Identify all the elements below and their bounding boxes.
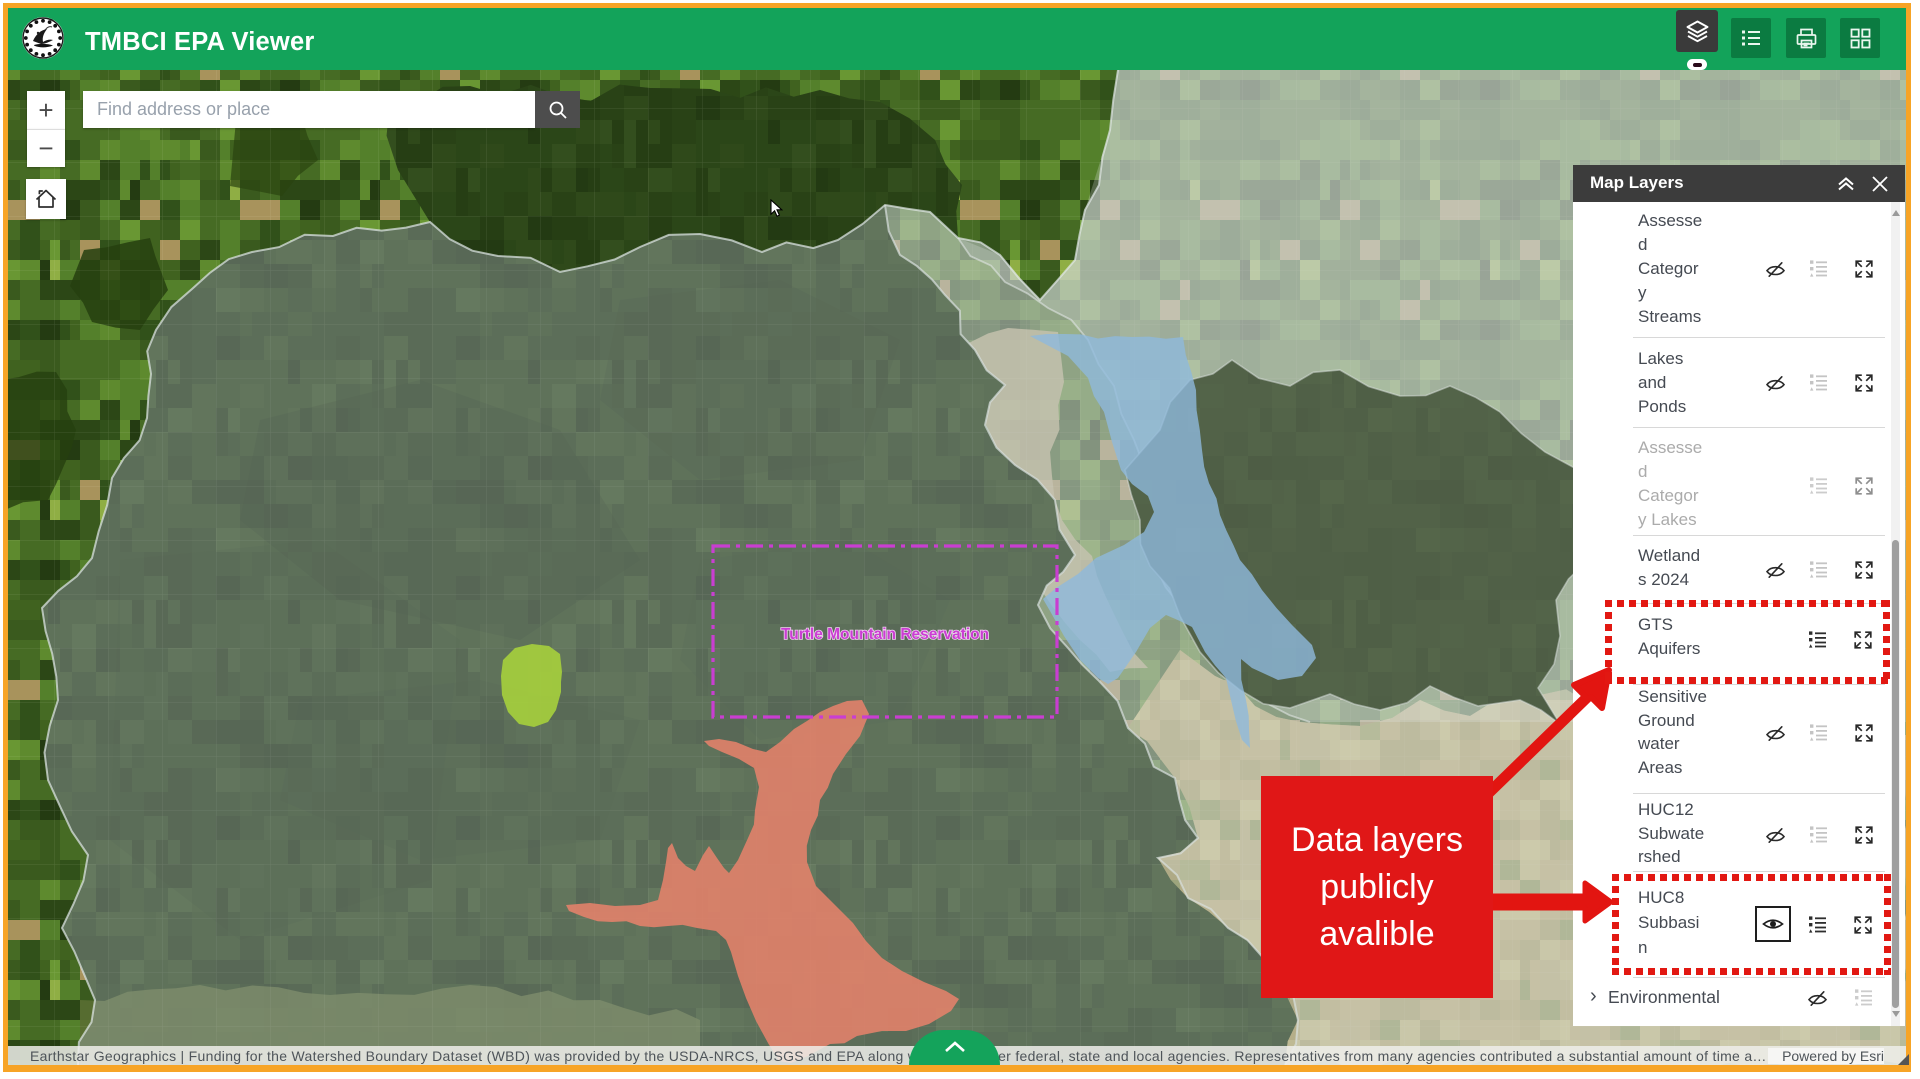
svg-text:Turtle Mountain Reservation: Turtle Mountain Reservation: [781, 626, 989, 643]
